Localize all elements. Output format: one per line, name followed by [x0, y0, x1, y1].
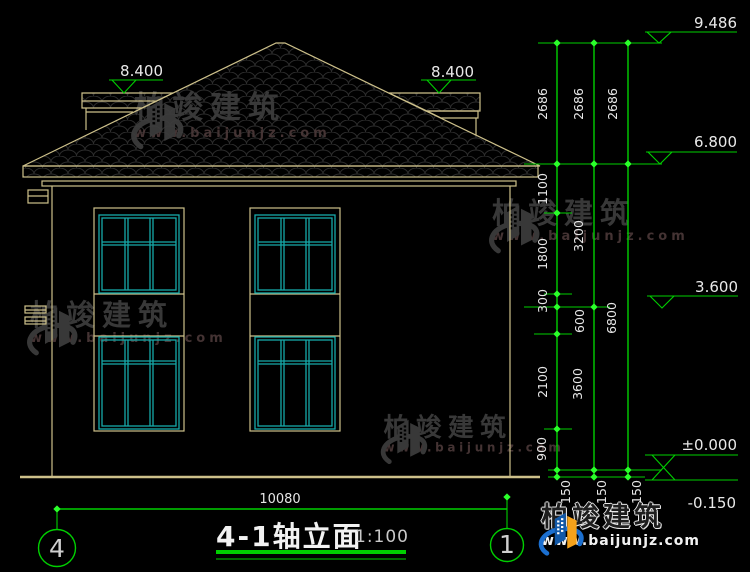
dim-inner-1800: 1800 [535, 238, 550, 270]
dim-inner-2686: 2686 [535, 88, 550, 120]
dimension-chains: 2686 1100 1800 300 600 2100 900 150 2686… [524, 39, 662, 504]
elevation-floor1: ±0.000 [645, 436, 738, 480]
window-column-right [250, 208, 340, 431]
title-underline-thick [216, 550, 406, 554]
window-column-left [94, 208, 184, 431]
axis-bubble-4-label: 4 [49, 534, 65, 563]
dim-inner-150: 150 [558, 480, 573, 504]
elevation-canopy-left: 8.400 [109, 62, 163, 93]
elevation-canopy-left-value: 8.400 [120, 62, 163, 80]
cad-elevation-drawing: 柏竣建筑 www.baijunjz.com 柏竣建筑 www.baijunjz.… [0, 0, 750, 572]
drawing-title: 4-1轴立面 [216, 520, 363, 553]
elevation-canopy-right: 8.400 [421, 63, 476, 93]
dim-inner-600: 600 [572, 309, 587, 333]
elevation-ridge: 9.486 [645, 14, 737, 43]
brand-footer: 柏竣建筑 www.baijunjz.com [536, 504, 700, 549]
axis-bubble-4: 4 [39, 530, 76, 567]
eave-fascia-upper [23, 166, 538, 177]
elevation-eave-value: 6.800 [694, 133, 737, 151]
wall-bracket-left [25, 306, 46, 324]
axis-bubble-1-label: 1 [499, 530, 515, 559]
dim-middle-150: 150 [594, 480, 609, 504]
dim-inner-900: 900 [534, 437, 549, 461]
roof-canopy-right [389, 93, 480, 135]
elevation-floor2: 3.600 [647, 278, 738, 308]
dim-outer-6800: 6800 [604, 302, 619, 334]
dim-overall-width: 10080 [259, 492, 300, 507]
building-outline [20, 43, 540, 477]
axis-bubble-1: 1 [491, 529, 524, 562]
elevation-canopy-right-value: 8.400 [431, 63, 474, 81]
window-lower-left [99, 337, 179, 429]
elevation-floor2-value: 3.600 [695, 278, 738, 296]
window-upper-left [99, 215, 179, 293]
dim-inner-300: 300 [535, 289, 550, 313]
dim-inner-2100: 2100 [535, 366, 550, 398]
dim-outer-150: 150 [629, 480, 644, 504]
hip-roof-outline [23, 43, 540, 166]
elevation-ridge-value: 9.486 [694, 14, 737, 32]
dim-inner-1100: 1100 [535, 173, 550, 205]
elevation-floor1-value: ±0.000 [681, 436, 737, 454]
window-upper-right [255, 215, 335, 293]
dim-middle-3200: 3200 [571, 220, 586, 252]
dim-middle-2686: 2686 [571, 88, 586, 120]
title-block: 4-1轴立面 1:100 [216, 520, 409, 559]
drawing-scale: 1:100 [355, 527, 409, 547]
dim-outer-2686: 2686 [605, 88, 620, 120]
brand-logo-icon [536, 504, 586, 562]
roof-canopy-left [82, 93, 173, 130]
elevation-eave: 6.800 [646, 133, 737, 164]
window-lower-right [255, 337, 335, 429]
eave-bracket-left [28, 190, 48, 203]
elevation-markers: 9.486 8.400 8.400 6.800 3.600 [109, 14, 738, 512]
eave-fascia-lower [42, 181, 516, 186]
drawing-linework-layer: 2686 1100 1800 300 600 2100 900 150 2686… [0, 0, 750, 572]
dim-middle-3600: 3600 [570, 368, 585, 400]
